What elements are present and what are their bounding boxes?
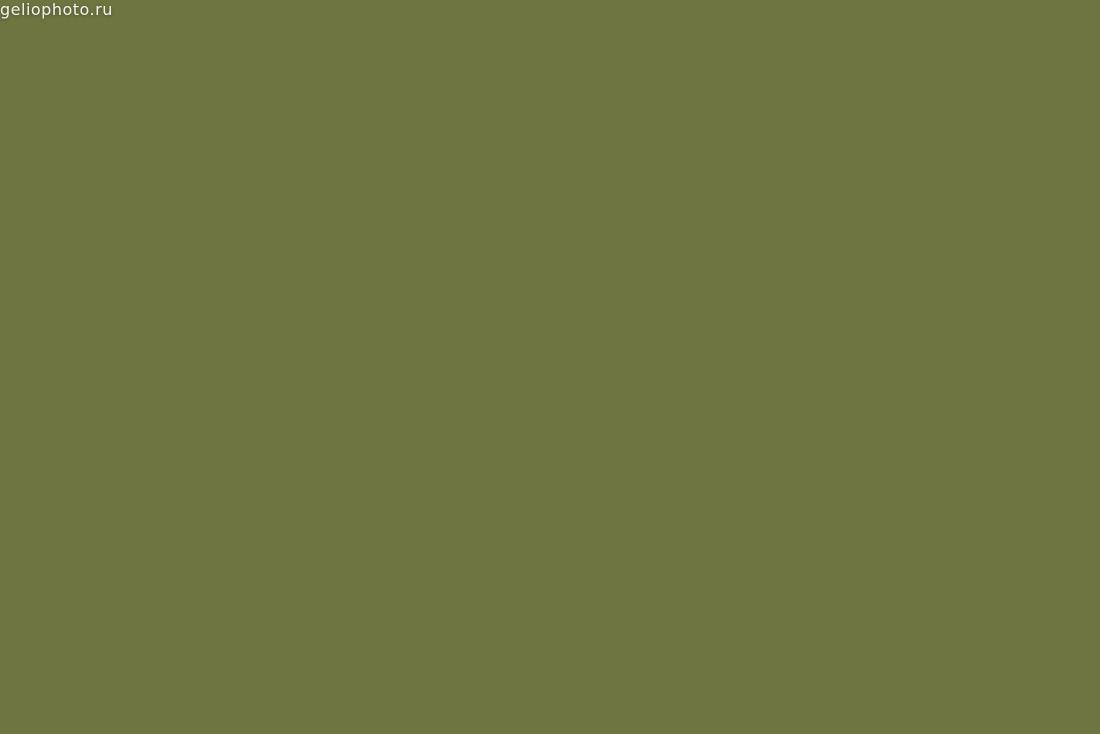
ground-layer <box>0 0 1100 734</box>
base-ground <box>0 0 1100 734</box>
aerial-photo: geliophoto.ru <box>0 0 1100 734</box>
aerial-scene-canvas <box>0 0 1100 734</box>
watermark-text: geliophoto.ru <box>0 0 113 19</box>
